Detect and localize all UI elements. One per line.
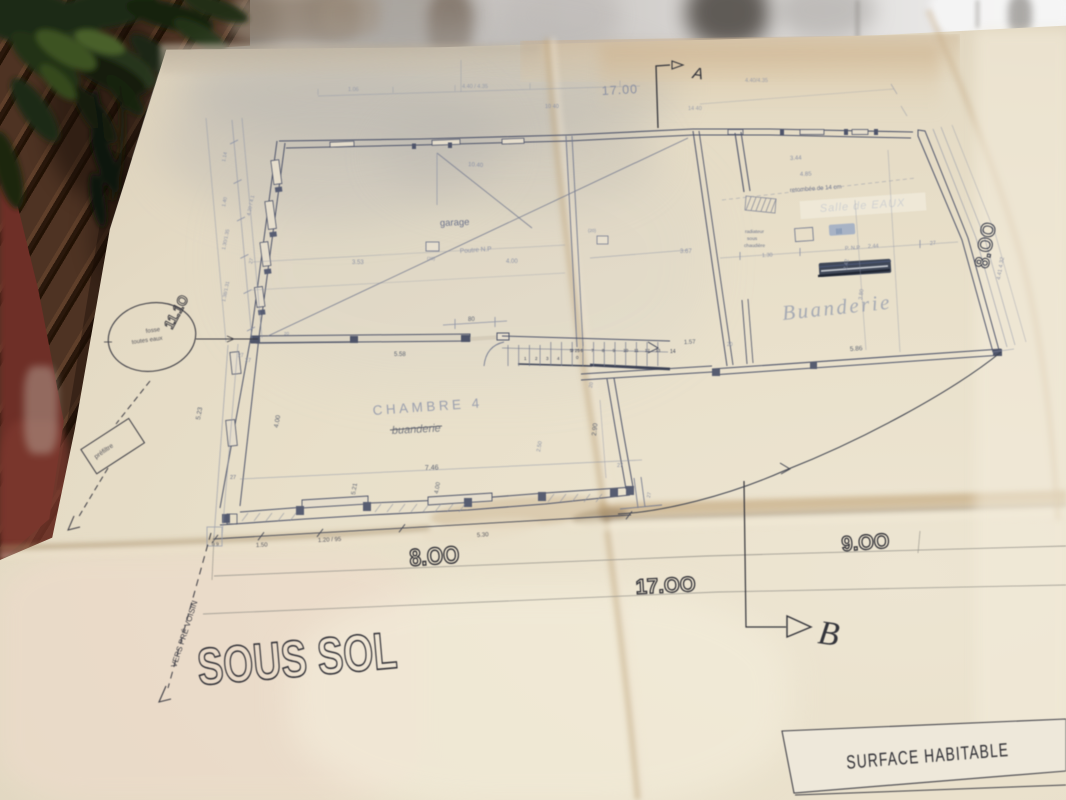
svg-text:10 40: 10 40 [545,104,559,110]
svg-text:27: 27 [930,240,937,247]
svg-text:sous: sous [747,237,758,242]
svg-text:3.44: 3.44 [790,155,803,162]
svg-text:2.90: 2.90 [591,423,599,437]
svg-text:1.30: 1.30 [762,252,773,259]
svg-text:5.58: 5.58 [394,352,406,358]
svg-text:2: 2 [535,356,538,361]
svg-text:toutes eaux: toutes eaux [131,336,163,346]
svg-text:4.00: 4.00 [273,414,282,428]
svg-text:80: 80 [468,317,475,323]
svg-text:Buanderie: Buanderie [781,290,893,325]
svg-text:20: 20 [284,331,290,336]
svg-text:0 9: 0 9 [212,542,219,548]
svg-text:garage: garage [440,217,470,229]
svg-text:préfiltre: préfiltre [93,442,115,460]
svg-text:radiateur: radiateur [745,229,764,235]
svg-text:VERS PRÉ VOISIN: VERS PRÉ VOISIN [169,599,199,668]
svg-text:A: A [690,65,704,83]
svg-text:2.44: 2.44 [868,243,879,250]
svg-text:7.46: 7.46 [425,465,439,472]
svg-text:0: 0 [576,355,579,360]
svg-text:1.06: 1.06 [348,87,359,93]
svg-text:11: 11 [634,348,639,353]
svg-text:27: 27 [248,258,255,265]
svg-text:27: 27 [230,475,236,481]
svg-text:1.57: 1.57 [684,339,697,346]
svg-text:10.40: 10.40 [468,162,484,169]
svg-text:4.40 / 4.35: 4.40 / 4.35 [462,84,488,90]
svg-text:27: 27 [245,358,251,364]
svg-text:27: 27 [646,492,653,499]
svg-text:1: 1 [524,356,527,361]
svg-text:11.1O: 11.1O [161,292,192,331]
svg-text:2.50: 2.50 [536,441,544,453]
svg-text:4.85: 4.85 [800,171,813,178]
svg-text:1.20 / 95: 1.20 / 95 [318,537,342,544]
svg-text:fosse: fosse [145,327,161,335]
svg-text:20: 20 [588,382,595,389]
svg-text:4.40/4.35: 4.40/4.35 [745,78,768,84]
svg-text:14: 14 [670,349,676,355]
svg-text:1.40: 1.40 [221,196,229,207]
svg-text:9.OO: 9.OO [841,530,890,556]
svg-text:14 40: 14 40 [688,106,702,112]
svg-text:4.00: 4.00 [434,481,442,494]
svg-text:10: 10 [623,348,629,353]
svg-text:||||: |||| [836,229,843,235]
svg-text:1.50: 1.50 [256,542,269,549]
svg-text:27: 27 [238,353,244,359]
svg-text:SOUS SOL: SOUS SOL [195,622,399,697]
svg-text:4.00: 4.00 [506,259,518,265]
svg-text:5.86: 5.86 [850,345,863,353]
svg-text:1.38/1.31: 1.38/1.31 [221,281,231,303]
svg-text:4.41 4.32: 4.41 4.32 [996,257,1006,281]
svg-text:27: 27 [617,463,623,469]
svg-text:5.21: 5.21 [351,482,359,495]
svg-text:3 25: 3 25 [571,348,580,353]
svg-text:17.OO: 17.OO [635,573,696,599]
svg-text:3.53: 3.53 [352,260,364,266]
svg-text:1.14: 1.14 [221,151,229,162]
svg-text:5.30: 5.30 [477,532,490,539]
svg-text:8.OO: 8.OO [971,221,1001,270]
svg-text:(20): (20) [427,256,436,261]
svg-text:17.00: 17.00 [601,82,638,98]
svg-text:(20): (20) [588,228,597,233]
svg-text:chaudière: chaudière [744,243,765,249]
svg-text:1.30/1.35: 1.30/1.35 [221,229,231,251]
svg-text:4: 4 [557,356,560,361]
svg-text:B: B [816,614,842,654]
svg-text:5.23: 5.23 [195,406,204,420]
svg-text:20: 20 [727,342,733,348]
svg-text:3: 3 [546,356,549,361]
svg-text:CHAMBRE 4: CHAMBRE 4 [372,395,483,418]
svg-text:4.20 / 4.1: 4.20 / 4.1 [246,195,256,217]
